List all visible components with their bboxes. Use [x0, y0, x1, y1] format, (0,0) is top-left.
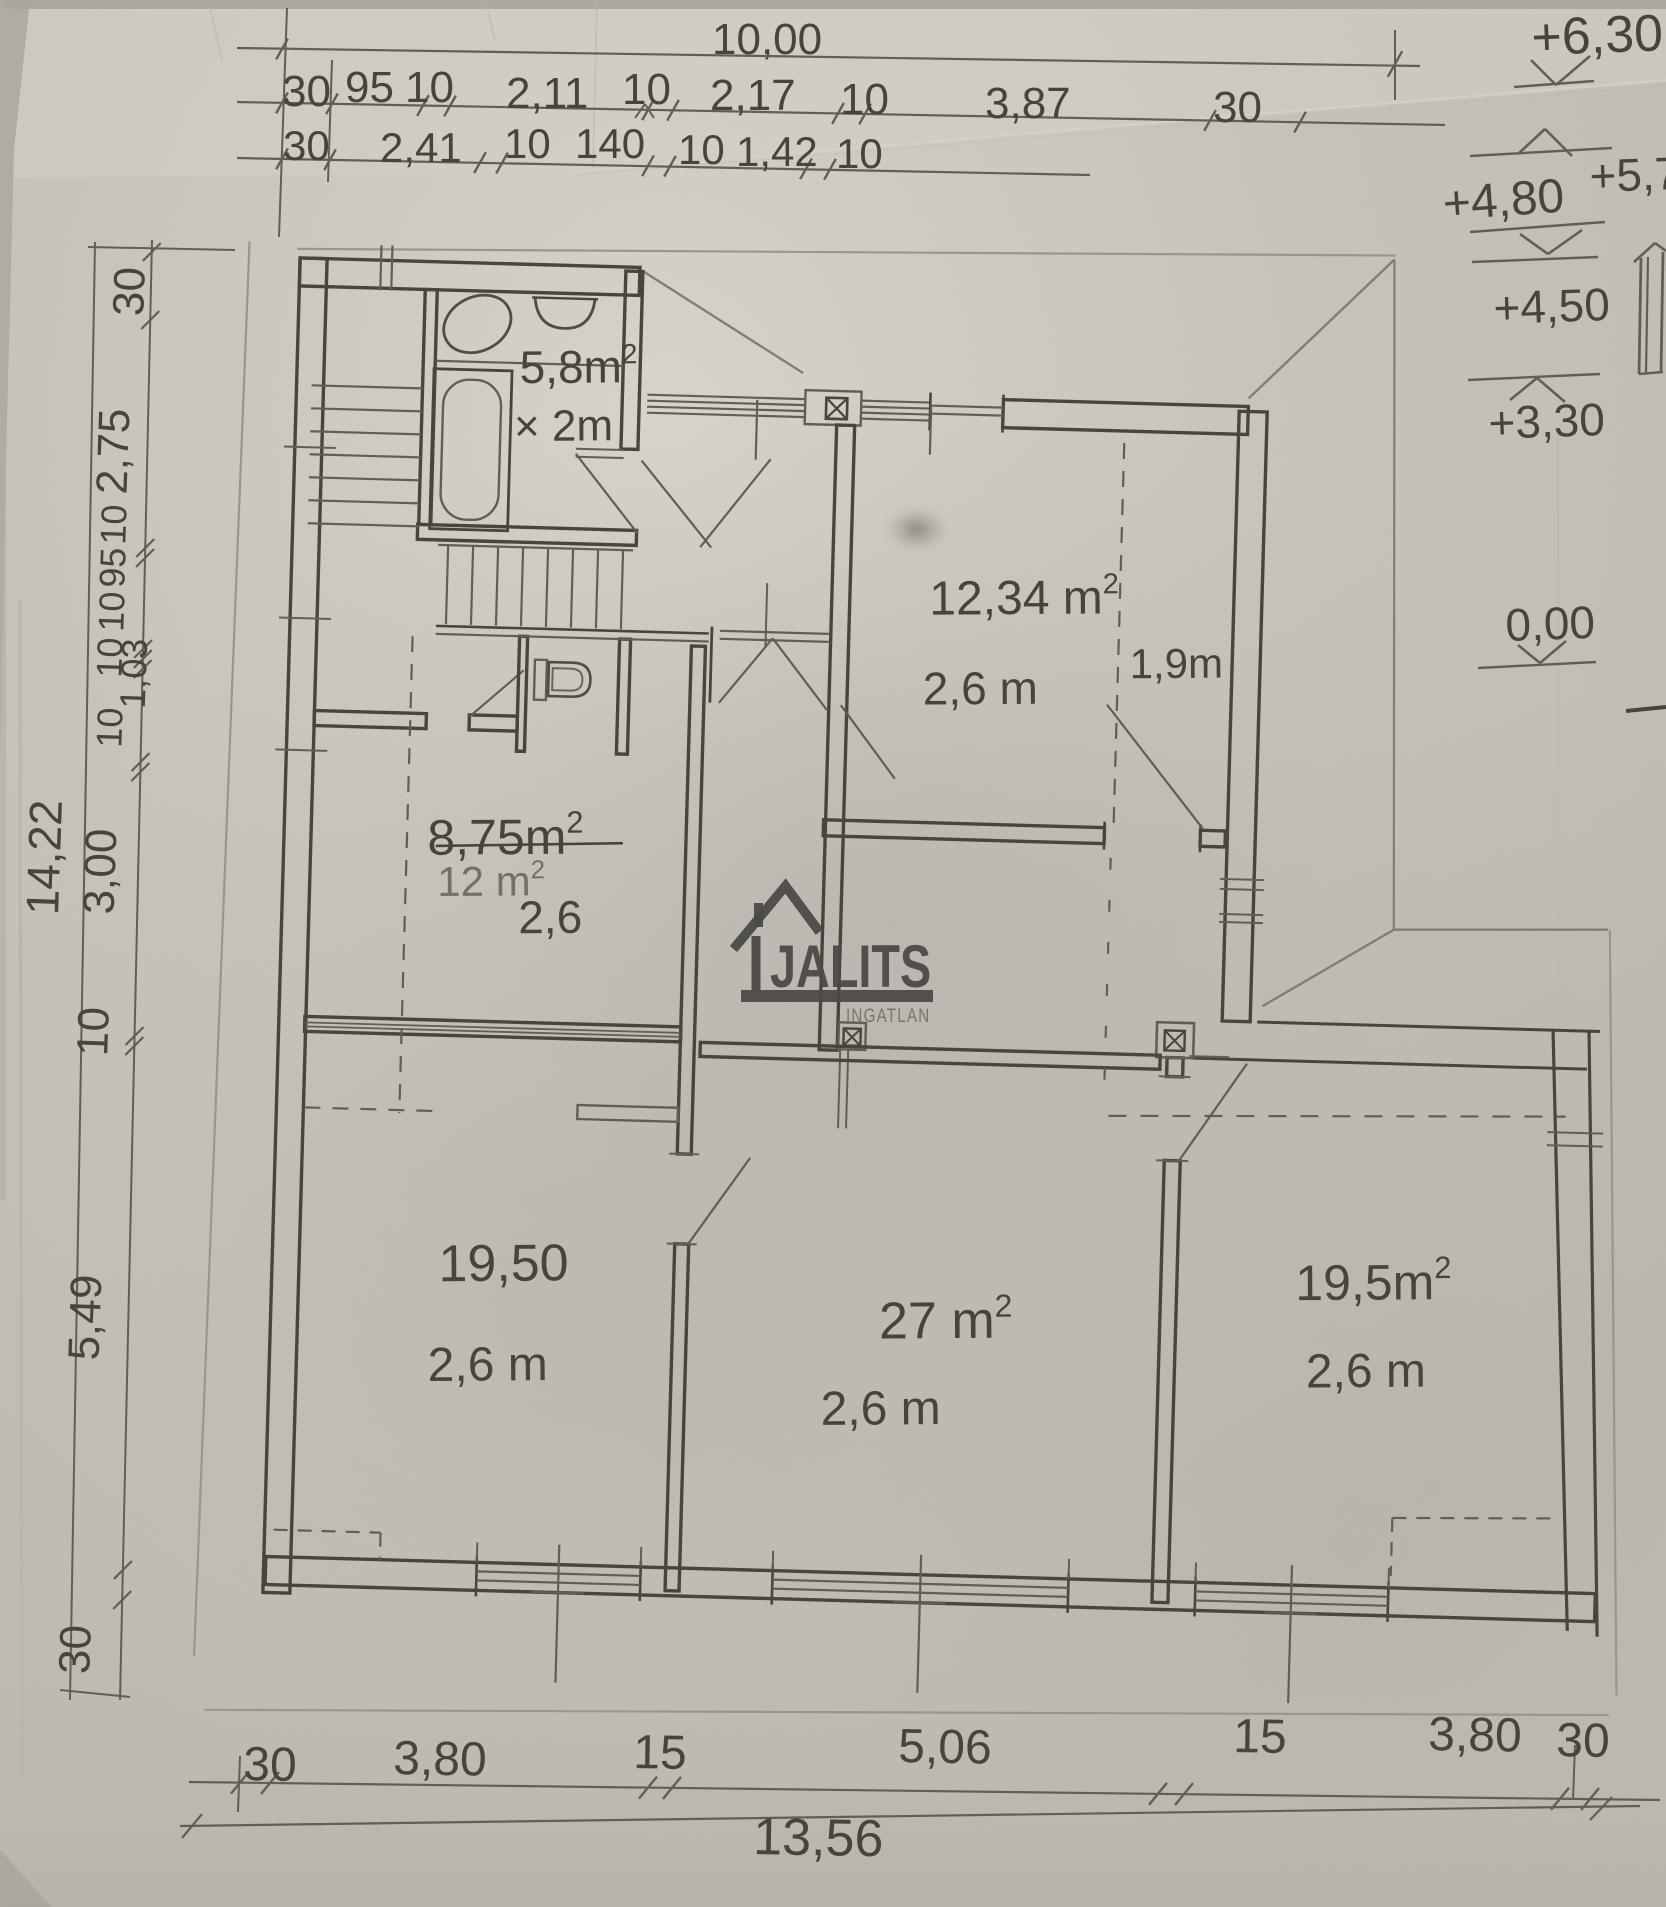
- svg-text:95: 95: [91, 547, 133, 588]
- svg-text:14,22: 14,22: [16, 799, 72, 916]
- svg-text:30: 30: [243, 1738, 297, 1792]
- svg-text:19,50: 19,50: [438, 1234, 569, 1293]
- svg-text:10: 10: [840, 75, 889, 124]
- svg-text:INGATLAN: INGATLAN: [846, 1004, 930, 1026]
- svg-text:+4,50: +4,50: [1493, 278, 1611, 334]
- svg-text:10: 10: [678, 126, 725, 173]
- svg-text:10: 10: [836, 130, 883, 177]
- svg-text:13,56: 13,56: [753, 1808, 884, 1868]
- svg-text:2,6: 2,6: [518, 891, 582, 943]
- svg-text:2,11: 2,11: [506, 69, 588, 118]
- svg-text:95: 95: [345, 63, 394, 112]
- svg-text:5,49: 5,49: [60, 1274, 112, 1361]
- svg-text:2,41: 2,41: [380, 124, 462, 171]
- svg-text:2,6 m: 2,6 m: [428, 1338, 548, 1392]
- svg-text:1,9m: 1,9m: [1129, 640, 1223, 688]
- svg-text:15: 15: [1233, 1710, 1287, 1764]
- svg-text:× 2m: × 2m: [514, 401, 613, 451]
- svg-text:+4,80: +4,80: [1441, 170, 1566, 231]
- svg-text:30: 30: [104, 266, 155, 317]
- svg-text:2,6 m: 2,6 m: [820, 1382, 940, 1436]
- svg-text:30: 30: [50, 1624, 101, 1675]
- svg-text:10: 10: [92, 504, 134, 545]
- svg-text:+6,30: +6,30: [1530, 4, 1664, 67]
- svg-text:10: 10: [90, 591, 132, 632]
- svg-text:30: 30: [282, 67, 331, 116]
- svg-text:27 m2: 27 m2: [879, 1288, 1013, 1351]
- svg-text:3,80: 3,80: [1428, 1708, 1522, 1763]
- svg-text:3,80: 3,80: [393, 1732, 487, 1787]
- svg-text:0,00: 0,00: [1505, 596, 1596, 651]
- svg-text:+5,7: +5,7: [1589, 147, 1666, 202]
- svg-text:3,00: 3,00: [75, 828, 127, 915]
- svg-text:30: 30: [1556, 1714, 1610, 1768]
- svg-text:5,06: 5,06: [898, 1720, 992, 1775]
- svg-text:30: 30: [1213, 83, 1262, 132]
- svg-text:2,6 m: 2,6 m: [1306, 1345, 1426, 1399]
- svg-text:2,6 m: 2,6 m: [923, 662, 1038, 715]
- svg-text:10: 10: [504, 120, 551, 167]
- svg-text:30: 30: [283, 122, 330, 169]
- svg-text:10: 10: [68, 1006, 119, 1057]
- svg-text:3,87: 3,87: [985, 79, 1071, 128]
- svg-text:2,75: 2,75: [88, 408, 140, 495]
- svg-text:1,42: 1,42: [736, 128, 818, 175]
- svg-text:+3,30: +3,30: [1488, 393, 1606, 449]
- svg-text:1,03: 1,03: [112, 638, 155, 709]
- svg-text:140: 140: [575, 120, 645, 167]
- svg-text:10: 10: [88, 707, 130, 748]
- svg-text:10: 10: [405, 63, 454, 112]
- svg-text:19,5m2: 19,5m2: [1295, 1250, 1452, 1311]
- svg-text:JALITS: JALITS: [770, 933, 931, 1000]
- svg-text:5,8m2: 5,8m2: [519, 338, 637, 393]
- svg-text:2,17: 2,17: [710, 71, 796, 120]
- svg-text:12,34 m2: 12,34 m2: [929, 568, 1119, 625]
- svg-text:15: 15: [633, 1726, 687, 1780]
